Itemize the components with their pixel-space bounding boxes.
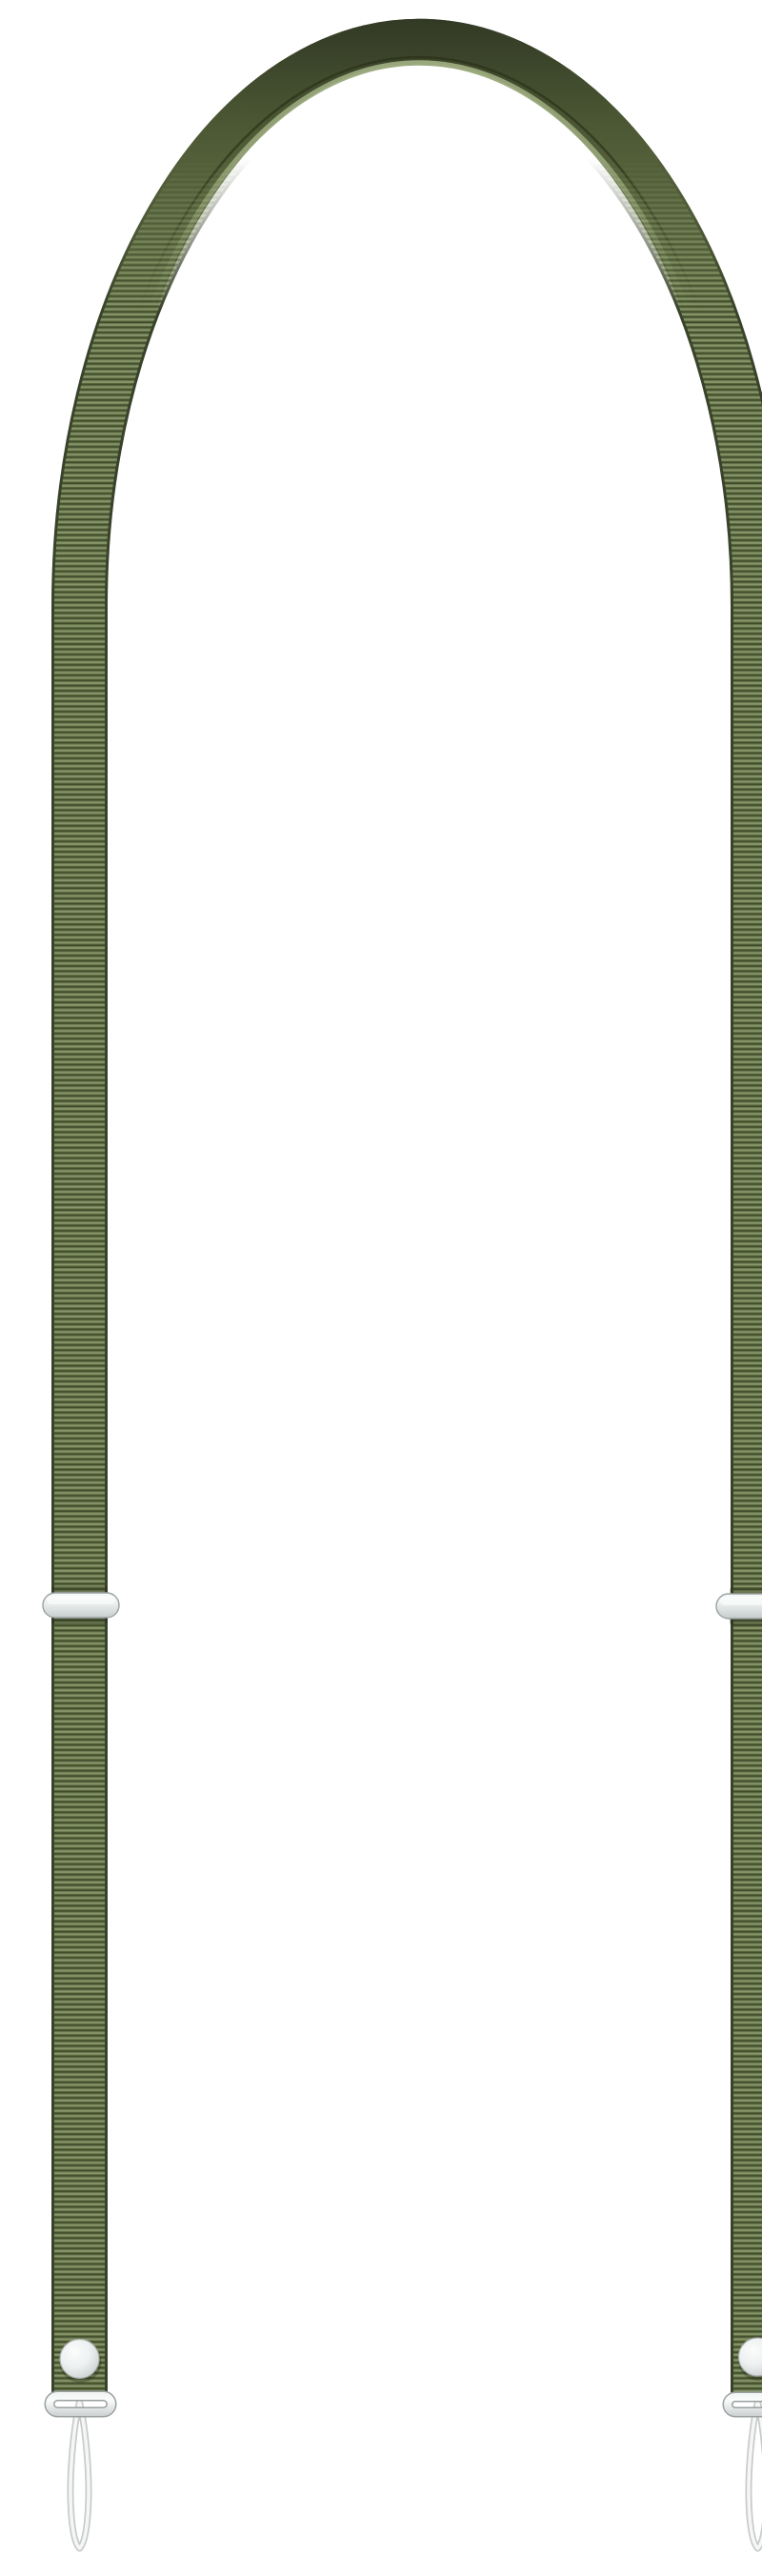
arc-inner-taper bbox=[105, 63, 733, 1153]
right-slider-highlight bbox=[720, 1597, 762, 1605]
lanyard-strap-illustration bbox=[38, 15, 762, 2561]
right-strap-adjuster-slider bbox=[716, 1587, 762, 1625]
left-snap-button bbox=[60, 2340, 99, 2379]
left-slider-highlight bbox=[47, 1596, 115, 1604]
product-photo bbox=[38, 15, 762, 2561]
